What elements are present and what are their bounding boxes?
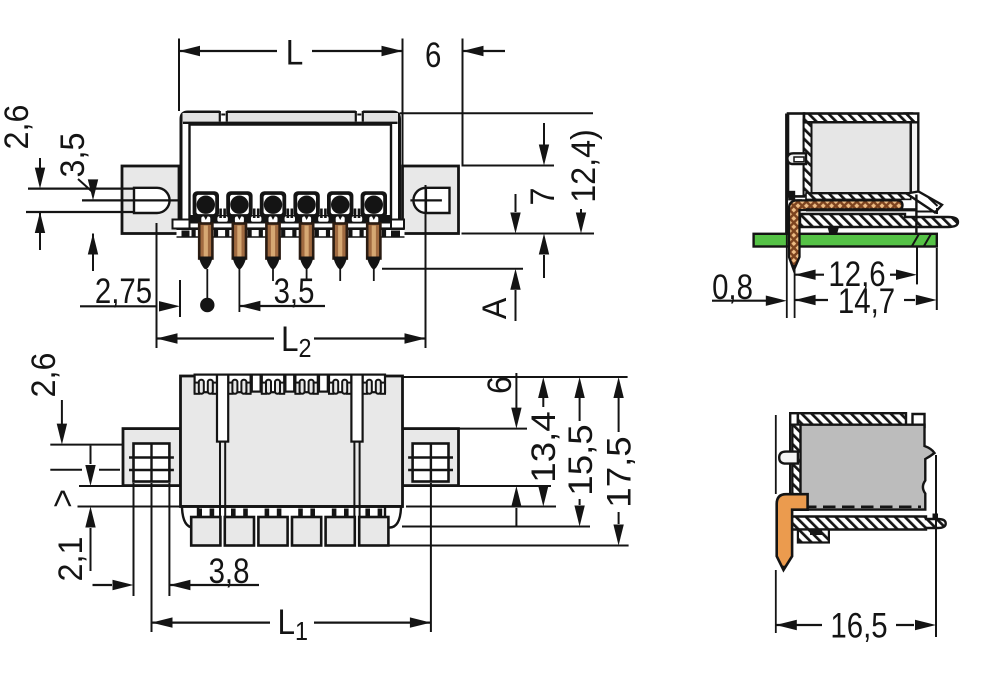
svg-text:13,4: 13,4 [525, 411, 562, 482]
svg-text:3,5: 3,5 [274, 272, 315, 311]
svg-text:6: 6 [481, 376, 519, 394]
svg-text:17,5: 17,5 [601, 436, 638, 507]
svg-text:L: L [286, 34, 304, 73]
svg-text:2,1: 2,1 [52, 537, 90, 582]
svg-text:14,7: 14,7 [838, 282, 895, 321]
svg-text:16,5: 16,5 [830, 606, 887, 645]
svg-text:12,4): 12,4) [565, 129, 603, 203]
svg-text:6: 6 [425, 36, 441, 75]
svg-text:3,5: 3,5 [54, 133, 92, 178]
svg-text:L: L [278, 604, 296, 643]
svg-text:7: 7 [524, 188, 562, 206]
svg-text:2,6: 2,6 [0, 105, 36, 150]
svg-text:A: A [476, 297, 514, 319]
svg-text:L: L [281, 321, 299, 360]
svg-text:1: 1 [295, 618, 308, 646]
svg-text:2,6: 2,6 [25, 353, 63, 398]
svg-text:>: > [44, 489, 82, 508]
svg-text:2: 2 [299, 335, 312, 363]
svg-text:15,5: 15,5 [562, 424, 599, 495]
svg-text:2,75: 2,75 [95, 272, 152, 311]
svg-text:3,8: 3,8 [209, 552, 250, 591]
